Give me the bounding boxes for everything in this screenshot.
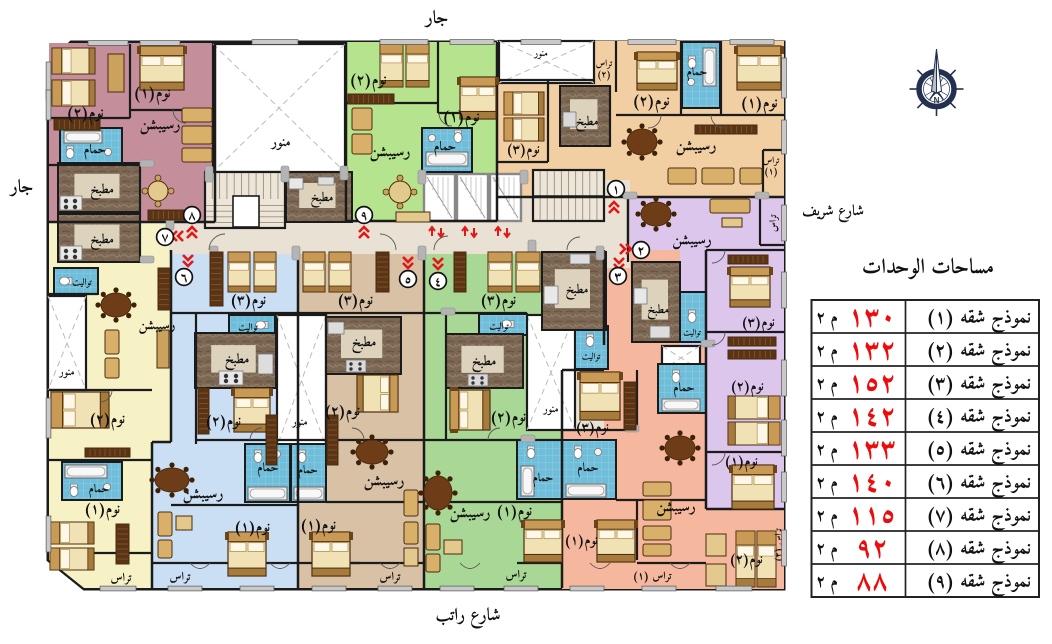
svg-text:N: N xyxy=(934,96,940,105)
